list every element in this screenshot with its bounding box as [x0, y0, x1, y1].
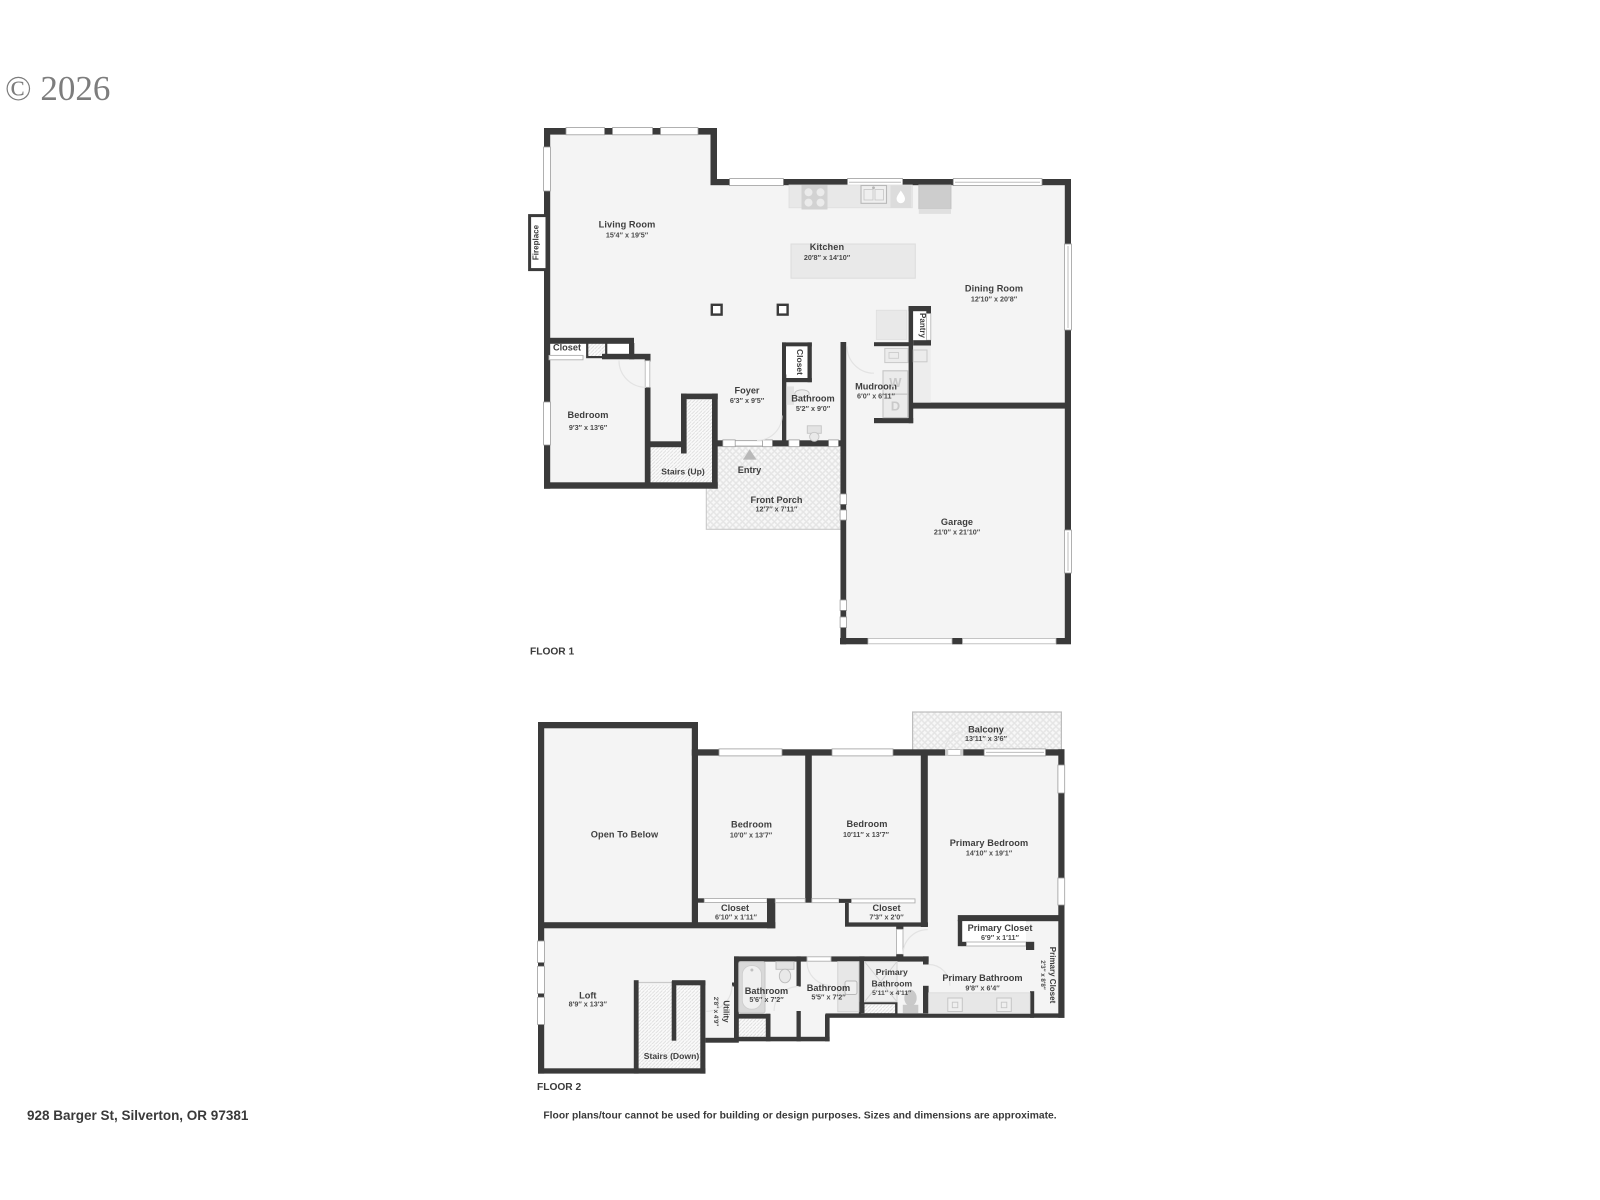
svg-text:21′0″ x 21′10″: 21′0″ x 21′10″	[934, 528, 981, 537]
svg-text:Dining Room: Dining Room	[965, 283, 1023, 293]
svg-text:FLOOR 2: FLOOR 2	[537, 1082, 581, 1093]
svg-text:Foyer: Foyer	[734, 386, 759, 396]
svg-text:20′8″ x 14′10″: 20′8″ x 14′10″	[804, 253, 851, 262]
svg-text:928 Barger St, Silverton, OR 9: 928 Barger St, Silverton, OR 97381	[27, 1108, 249, 1123]
svg-text:Living Room: Living Room	[599, 220, 656, 230]
svg-text:Bedroom: Bedroom	[846, 819, 887, 829]
svg-text:Closet: Closet	[553, 342, 581, 352]
svg-text:14′10″ x 19′1″: 14′10″ x 19′1″	[966, 848, 1013, 857]
svg-text:D: D	[891, 399, 900, 414]
svg-text:Stairs (Up): Stairs (Up)	[661, 467, 705, 477]
svg-text:Bathroom: Bathroom	[872, 978, 913, 988]
svg-text:10′11″ x 13′7″: 10′11″ x 13′7″	[843, 830, 889, 839]
svg-text:Bathroom: Bathroom	[791, 394, 834, 404]
svg-text:10′0″ x 13′7″: 10′0″ x 13′7″	[730, 831, 773, 840]
svg-text:Open To Below: Open To Below	[591, 829, 659, 839]
svg-text:13′11″ x 3′6″: 13′11″ x 3′6″	[965, 734, 1007, 743]
svg-text:9′3″ x 13′6″: 9′3″ x 13′6″	[569, 423, 608, 432]
svg-text:Utility: Utility	[722, 1000, 731, 1023]
svg-text:15′4″ x 19′5″: 15′4″ x 19′5″	[606, 230, 649, 239]
svg-text:5′5″ x 7′2″: 5′5″ x 7′2″	[811, 992, 846, 1001]
svg-text:Front Porch: Front Porch	[750, 495, 802, 505]
svg-text:12′7″ x 7′11″: 12′7″ x 7′11″	[756, 505, 798, 514]
svg-text:2′8″ x 4′9″: 2′8″ x 4′9″	[712, 997, 719, 1027]
svg-text:Stairs (Down): Stairs (Down)	[644, 1051, 700, 1061]
svg-text:5′6″ x 7′2″: 5′6″ x 7′2″	[749, 995, 784, 1004]
svg-text:6′9″ x 1′11″: 6′9″ x 1′11″	[981, 933, 1019, 942]
svg-text:8′9″ x 13′3″: 8′9″ x 13′3″	[569, 1000, 608, 1009]
svg-text:5′2″ x 9′0″: 5′2″ x 9′0″	[796, 404, 831, 413]
svg-text:Fireplace: Fireplace	[531, 224, 540, 260]
svg-text:Primary Bathroom: Primary Bathroom	[942, 973, 1022, 983]
svg-text:Pantry: Pantry	[918, 313, 927, 338]
svg-text:Entry: Entry	[738, 465, 762, 475]
svg-text:Bedroom: Bedroom	[731, 820, 772, 830]
svg-text:Floor plans/tour cannot be use: Floor plans/tour cannot be used for buil…	[543, 1111, 1056, 1122]
svg-text:7′3″ x 2′0″: 7′3″ x 2′0″	[869, 912, 904, 921]
svg-text:Primary: Primary	[876, 967, 908, 977]
svg-text:Closet: Closet	[795, 349, 805, 375]
svg-text:12′10″ x 20′8″: 12′10″ x 20′8″	[971, 295, 1018, 304]
svg-text:© 2026: © 2026	[5, 69, 110, 108]
svg-text:Primary Closet: Primary Closet	[968, 923, 1033, 933]
svg-text:Bedroom: Bedroom	[567, 410, 608, 420]
svg-text:Garage: Garage	[941, 517, 973, 527]
svg-text:FLOOR 1: FLOOR 1	[530, 647, 574, 658]
svg-text:Kitchen: Kitchen	[810, 242, 845, 252]
svg-text:Primary Closet: Primary Closet	[1048, 947, 1057, 1004]
svg-text:2′3″ x 8′8″: 2′3″ x 8′8″	[1039, 960, 1046, 990]
svg-text:5′11″ x 4′11″: 5′11″ x 4′11″	[872, 990, 912, 997]
svg-text:6′3″ x 9′5″: 6′3″ x 9′5″	[730, 396, 765, 405]
svg-text:9′8″ x 6′4″: 9′8″ x 6′4″	[965, 983, 1000, 992]
svg-text:W: W	[889, 375, 902, 390]
svg-text:6′10″ x 1′11″: 6′10″ x 1′11″	[715, 912, 757, 921]
svg-text:Primary Bedroom: Primary Bedroom	[950, 838, 1029, 848]
